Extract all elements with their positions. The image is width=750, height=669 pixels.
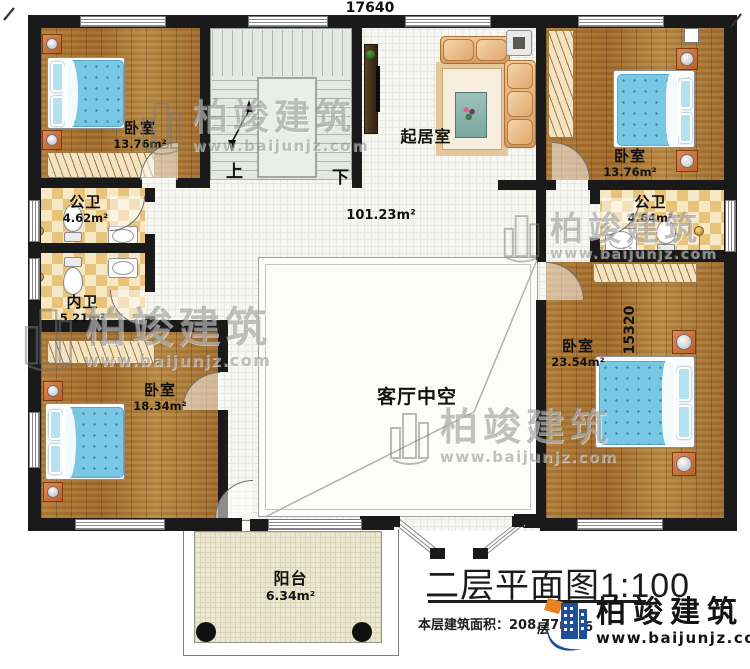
stair-landing [257, 77, 317, 178]
stairs-down-text: 下 [328, 168, 354, 188]
side-table [506, 30, 532, 56]
nightstand [676, 48, 698, 70]
room-area: 6.34m² [248, 589, 333, 604]
sofa-back [440, 36, 510, 64]
window [29, 258, 40, 300]
stairs-up-label: 上 [222, 162, 248, 182]
window [577, 519, 663, 530]
room-name: 阳台 [248, 570, 333, 589]
room-label-bedroom-top-left: 卧室 13.76m² [95, 120, 185, 151]
balcony-column [196, 622, 216, 642]
pillow [677, 405, 691, 439]
room-area: 4.62m² [43, 212, 128, 226]
room-label-balcony: 阳台 6.34m² [248, 570, 333, 604]
wall-segment [28, 243, 155, 253]
corner-window [684, 28, 699, 43]
sofa-cushion [507, 119, 533, 145]
sofa-cushion [507, 63, 533, 89]
stairs-down-label: 下 [328, 168, 354, 188]
window [80, 16, 166, 27]
sofa-cushion [443, 39, 474, 61]
room-label-living-room: 起居室 [382, 128, 470, 147]
wall-segment [536, 300, 546, 520]
wall-segment [536, 190, 546, 262]
bed [613, 70, 695, 148]
hallway-area-label: 101.23m² [336, 208, 426, 223]
wall-segment [590, 188, 600, 204]
room-name: 卧室 [115, 382, 205, 400]
company-logo: 柏竣建筑 www.baijunjz.com [541, 597, 750, 653]
room-name: 内卫 [40, 294, 125, 312]
wall-segment [514, 514, 546, 528]
floor-plan-canvas: 卧室 13.76m² 卧室 13.76m² 公卫 4.62m² 内卫 5.21m… [0, 0, 750, 669]
company-logo-url: www.baijunjz.com [596, 629, 750, 647]
toilet [63, 255, 85, 297]
room-name: 卧室 [580, 148, 680, 166]
stair-treads-top [212, 30, 352, 76]
company-logo-icon [541, 597, 591, 653]
wall-segment [218, 320, 228, 372]
room-area: 13.76m² [95, 138, 185, 152]
wall-segment [590, 250, 737, 262]
stairs-up-text: 上 [222, 162, 248, 182]
wardrobe [548, 30, 574, 138]
sofa-cushion [476, 39, 507, 61]
shower-fixture [694, 226, 704, 236]
room-name: 公卫 [43, 194, 128, 212]
room-label-bedroom-right: 卧室 23.54m² [528, 338, 628, 369]
room-name: 卧室 [95, 120, 185, 138]
bed [45, 403, 125, 480]
nightstand [672, 330, 696, 354]
wardrobe [593, 263, 697, 283]
plant [366, 50, 375, 59]
wall-segment [360, 516, 394, 530]
sofa-side [504, 60, 536, 148]
wall-segment [28, 178, 142, 188]
wall-segment [352, 15, 362, 188]
room-label-living-void: 客厅中空 [355, 386, 479, 408]
blanket [63, 59, 78, 128]
wall-segment [588, 180, 737, 190]
room-label-bedroom-bottom-left: 卧室 18.34m² [115, 382, 205, 413]
room-area: 23.54m² [528, 356, 628, 370]
pillow [677, 367, 691, 401]
window [725, 200, 736, 252]
wardrobe [47, 152, 155, 178]
room-name: 公卫 [608, 194, 693, 212]
wardrobe [47, 340, 155, 364]
wall-segment [200, 15, 210, 188]
room-label-public-bath-right: 公卫 4.64m² [608, 194, 693, 225]
tv [376, 66, 380, 112]
wall-segment [536, 15, 546, 190]
floor-area-label: 本层建筑面积： [418, 618, 509, 633]
room-name: 起居室 [382, 128, 470, 147]
wall-segment [250, 519, 268, 531]
stair-treads-right [317, 76, 352, 180]
nightstand [42, 130, 62, 150]
wall-segment [145, 188, 155, 202]
window [29, 412, 40, 468]
room-area: 18.34m² [115, 400, 205, 414]
room-name: 客厅中空 [355, 386, 479, 408]
window [29, 200, 40, 242]
dimension-top: 17640 [325, 0, 415, 16]
dimension-right: 15320 [622, 298, 638, 362]
room-label-public-bath-left: 公卫 4.62m² [43, 194, 128, 225]
blanket [61, 406, 76, 479]
nightstand [43, 381, 63, 401]
nightstand [43, 482, 63, 502]
bed [595, 356, 695, 448]
room-label-private-bath-left: 内卫 5.21m² [40, 294, 125, 325]
window [75, 519, 165, 530]
nightstand [42, 34, 62, 54]
pillow [679, 113, 692, 143]
blanket [662, 359, 679, 447]
room-area: 4.64m² [608, 212, 693, 226]
window [405, 16, 491, 27]
wall-segment [724, 15, 737, 531]
window [578, 16, 664, 27]
sink [108, 258, 138, 278]
window [268, 519, 362, 530]
company-logo-brand: 柏竣建筑 [596, 597, 750, 629]
room-area: 5.21m² [40, 312, 125, 326]
room-name: 卧室 [528, 338, 628, 356]
sofa-cushion [507, 91, 533, 117]
window [248, 16, 328, 27]
bed [47, 57, 125, 129]
nightstand [672, 452, 696, 476]
room-label-bedroom-top-right: 卧室 13.76m² [580, 148, 680, 179]
blanket [666, 73, 681, 147]
balcony-column [352, 622, 372, 642]
wall-segment [536, 180, 556, 190]
room-area: 13.76m² [580, 166, 680, 180]
wall-segment [176, 178, 210, 188]
room-area: 101.23m² [336, 208, 426, 223]
